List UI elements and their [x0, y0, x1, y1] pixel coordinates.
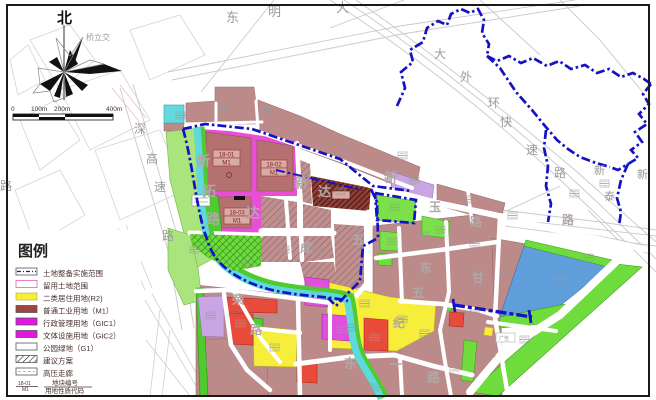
svg-text:东: 东	[420, 260, 432, 275]
svg-text:桥立交: 桥立交	[86, 32, 110, 42]
svg-text:高压走廊: 高压走廊	[43, 368, 73, 378]
svg-text:18-02: 18-02	[266, 163, 282, 169]
svg-text:甘: 甘	[472, 270, 484, 285]
svg-text:留用土地范围: 留用土地范围	[43, 281, 88, 291]
svg-text:文体设施用地（GIC2）: 文体设施用地（GIC2）	[43, 331, 121, 341]
svg-text:玉: 玉	[429, 200, 441, 214]
svg-text:18-01: 18-01	[219, 153, 235, 159]
svg-text:M1: M1	[270, 171, 279, 177]
svg-text:200m: 200m	[54, 106, 70, 113]
svg-text:M1: M1	[222, 161, 231, 167]
svg-text:环: 环	[488, 96, 500, 110]
svg-text:地块编号: 地块编号	[52, 378, 79, 387]
svg-text:东: 东	[344, 356, 357, 371]
svg-text:一: 一	[389, 357, 402, 372]
svg-text:泰: 泰	[604, 189, 615, 203]
svg-text:土地整备实施范围: 土地整备实施范围	[43, 268, 103, 278]
svg-text:路: 路	[470, 214, 483, 229]
svg-text:速: 速	[526, 143, 538, 157]
svg-text:广告: 广告	[499, 335, 509, 342]
svg-text:18-03: 18-03	[229, 211, 245, 217]
svg-text:图例: 图例	[18, 242, 48, 260]
svg-text:路: 路	[206, 211, 221, 227]
svg-text:普通工业用地（M1）: 普通工业用地（M1）	[43, 306, 113, 316]
svg-text:行政管理用地（GIC1）: 行政管理用地（GIC1）	[43, 318, 121, 328]
svg-text:路: 路	[427, 370, 441, 385]
svg-text:成: 成	[300, 240, 312, 255]
svg-text:五: 五	[412, 286, 424, 300]
svg-text:0: 0	[11, 106, 15, 113]
svg-text:400m: 400m	[106, 106, 122, 113]
svg-text:深: 深	[134, 122, 146, 136]
svg-text:快: 快	[500, 115, 512, 129]
svg-text:东: 东	[226, 10, 239, 25]
svg-text:纪: 纪	[393, 315, 405, 330]
svg-text:速: 速	[154, 180, 166, 194]
svg-text:M1: M1	[22, 387, 29, 393]
svg-text:新: 新	[196, 153, 210, 169]
svg-text:五: 五	[352, 233, 364, 247]
svg-text:路: 路	[162, 228, 174, 243]
svg-text:路: 路	[250, 322, 263, 337]
svg-text:大: 大	[336, 0, 349, 15]
svg-text:路: 路	[562, 212, 575, 227]
svg-text:路: 路	[554, 165, 566, 180]
svg-text:达: 达	[246, 205, 260, 221]
svg-text:荣: 荣	[231, 292, 245, 307]
svg-text:新: 新	[294, 175, 308, 191]
svg-text:高: 高	[146, 151, 158, 166]
svg-text:100m: 100m	[31, 106, 47, 113]
svg-text:达: 达	[318, 184, 331, 199]
svg-text:二类居住用地(R2): 二类居住用地(R2)	[43, 293, 103, 303]
svg-text:明: 明	[268, 4, 281, 19]
svg-text:北: 北	[57, 10, 72, 27]
svg-text:新: 新	[594, 163, 605, 177]
svg-text:M1: M1	[233, 219, 242, 225]
svg-text:公园绿地（G1）: 公园绿地（G1）	[43, 343, 98, 353]
svg-text:大: 大	[434, 47, 446, 61]
svg-text:外: 外	[460, 70, 472, 84]
svg-text:新: 新	[637, 167, 648, 181]
svg-text:拓: 拓	[202, 183, 216, 199]
svg-text:建议方案: 建议方案	[43, 356, 73, 366]
svg-text:新: 新	[384, 170, 397, 185]
